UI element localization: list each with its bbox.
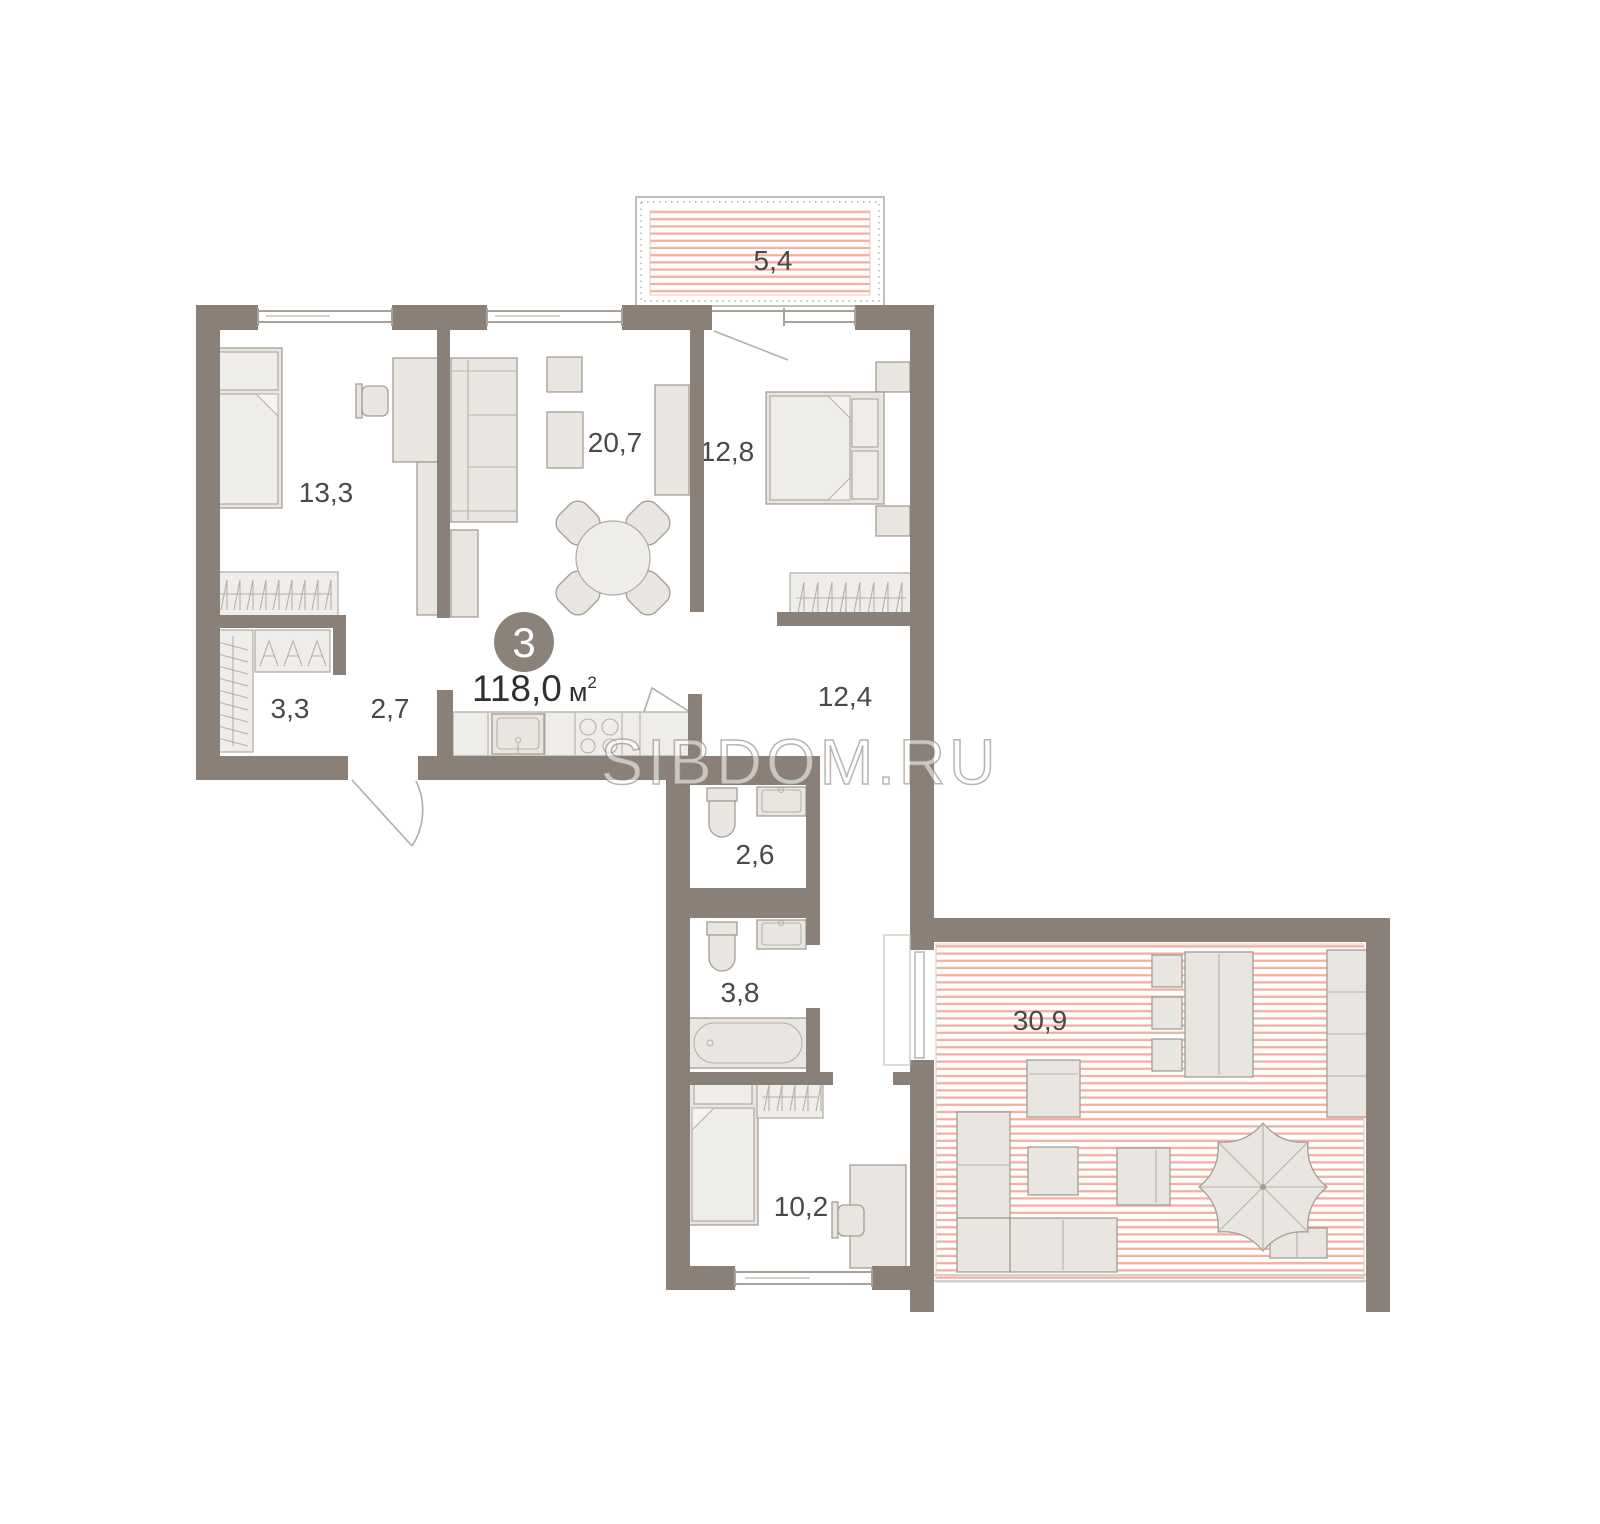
total-area-sup: 2: [587, 673, 596, 692]
watermark: SIBDOM.RU: [601, 726, 1000, 798]
window: [258, 308, 392, 326]
terrace-ottoman: [1027, 1060, 1080, 1117]
chair-seat: [838, 1205, 864, 1236]
area-label-bathroom: 3,8: [721, 977, 760, 1008]
closet-hangers: [255, 630, 330, 672]
bed-pillow: [217, 352, 278, 390]
bed-pillow: [852, 399, 878, 447]
terrace-chair: [1152, 955, 1182, 987]
room-terrace: 30,9: [936, 944, 1368, 1282]
dining-table: [576, 521, 650, 595]
fridge-door-swing: [644, 688, 690, 712]
room-bedroom-bottom: 10,2: [688, 1076, 906, 1268]
coffee-table: [547, 412, 583, 468]
room-bedroom-top-left: 13,3: [213, 348, 438, 617]
bed-blanket: [217, 394, 278, 504]
area-label-bedroom-top-right: 12,8: [700, 436, 755, 467]
toilet-bowl: [709, 801, 735, 837]
area-label-bedroom-top-left: 13,3: [299, 477, 354, 508]
terrace-armchair: [1117, 1148, 1170, 1205]
window: [735, 1269, 872, 1287]
balcony-door: [712, 308, 855, 360]
room-bedroom-top-right: 12,8: [700, 362, 912, 622]
coffee-table: [547, 357, 582, 392]
dining-set: [551, 496, 675, 620]
terrace-chair: [1152, 997, 1182, 1029]
apartment-summary: 3 118,0м2: [472, 612, 597, 709]
total-area: 118,0м2: [472, 668, 597, 709]
terrace-door: [884, 935, 924, 1065]
chair-back: [356, 384, 362, 418]
window: [487, 308, 622, 326]
area-label-wc: 2,6: [736, 839, 775, 870]
floor-plan: 5,4 30,9: [0, 0, 1600, 1524]
room-bathroom: 3,8: [688, 920, 808, 1068]
area-label-balcony: 5,4: [754, 245, 793, 276]
shelf: [417, 462, 438, 615]
chair-seat: [362, 386, 388, 416]
umbrella: [1199, 1123, 1327, 1251]
toilet-tank: [707, 922, 737, 935]
bathtub: [688, 1018, 808, 1068]
room-count-value: 3: [512, 619, 535, 666]
room-wc: 2,6: [707, 787, 806, 870]
total-area-value: 118,0: [472, 668, 562, 709]
area-label-bedroom-bottom: 10,2: [774, 1191, 829, 1222]
nightstand: [876, 506, 910, 536]
desk: [393, 358, 438, 462]
area-label-closet: 3,3: [271, 693, 310, 724]
bed-pillow: [852, 451, 878, 499]
bed-blanket: [692, 1108, 754, 1221]
bed-blanket: [770, 396, 850, 500]
chair-back: [832, 1202, 838, 1238]
terrace-side-table: [1028, 1147, 1078, 1195]
area-label-living: 20,7: [588, 427, 643, 458]
terrace-chair: [1152, 1039, 1182, 1071]
tv-unit: [655, 385, 689, 495]
nightstand: [876, 362, 910, 392]
area-label-terrace: 30,9: [1013, 1005, 1068, 1036]
terrace-sofa-corner: [957, 1218, 1010, 1272]
entrance-door: [352, 780, 423, 846]
toilet-bowl: [709, 935, 735, 971]
room-walk-in-closet: 3,3 2,7: [213, 630, 409, 752]
floor-plan-page: 5,4 30,9: [0, 0, 1600, 1524]
room-balcony: 5,4: [636, 197, 884, 306]
sofa: [451, 358, 517, 522]
total-area-unit: м: [569, 677, 588, 707]
area-label-hallway: 2,7: [371, 693, 410, 724]
area-label-corridor: 12,4: [818, 681, 873, 712]
side-shelf: [451, 530, 478, 617]
